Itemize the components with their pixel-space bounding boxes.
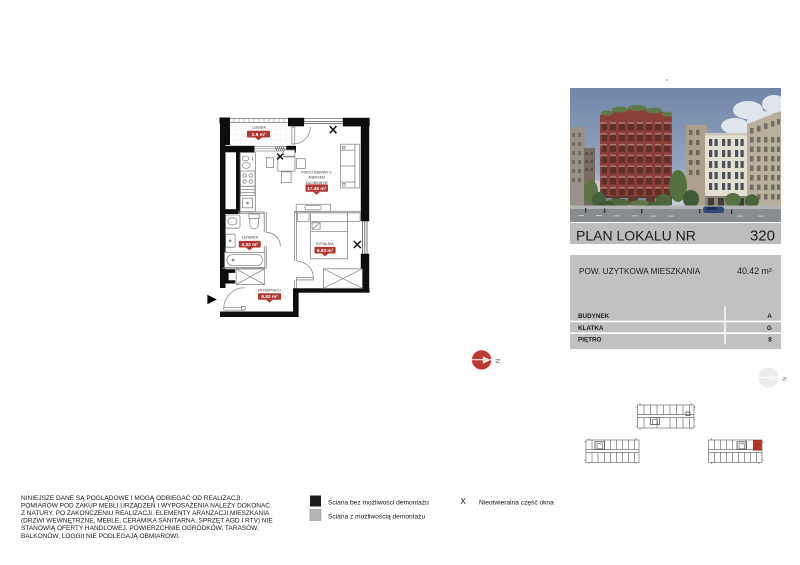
svg-text:SYPIALNIA: SYPIALNIA xyxy=(316,242,334,246)
svg-text:PLAN LOKALU NR: PLAN LOKALU NR xyxy=(576,228,696,244)
svg-text:8: 8 xyxy=(768,337,772,344)
svg-text:Nieotwieralna część okna: Nieotwieralna część okna xyxy=(479,499,554,506)
svg-text:POKÓJ DZIENNY Z: POKÓJ DZIENNY Z xyxy=(301,170,331,175)
svg-text:A: A xyxy=(767,313,772,320)
svg-text:POW. UŻYTKOWA MIESZKANIA: POW. UŻYTKOWA MIESZKANIA xyxy=(579,266,701,276)
svg-text:LOGGIA: LOGGIA xyxy=(252,126,266,130)
svg-text:Ściana z możliwością demontażu: Ściana z możliwością demontażu xyxy=(328,511,425,520)
svg-text:Ściana bez możliwości demontaż: Ściana bez możliwości demontażu xyxy=(328,497,429,506)
svg-text:4.32 m²: 4.32 m² xyxy=(241,242,258,248)
svg-text:PRZEDPOKÓJ: PRZEDPOKÓJ xyxy=(258,288,281,293)
svg-text:POMIARÓW POD ZAKUP MEBLI URZĄD: POMIARÓW POD ZAKUP MEBLI URZĄDZEŃ I WYPO… xyxy=(21,500,270,509)
svg-text:ŁAZIENKA: ŁAZIENKA xyxy=(242,236,259,240)
svg-text:N: N xyxy=(493,359,499,363)
svg-text:9.83 m²: 9.83 m² xyxy=(317,248,334,254)
svg-text:Z NATURY, PO ZAKOŃCZENIU REALI: Z NATURY, PO ZAKOŃCZENIU REALIZACJI. ELE… xyxy=(21,508,270,517)
svg-text:NINIEJSZE DANE SĄ POGLĄDOWE I: NINIEJSZE DANE SĄ POGLĄDOWE I MOGĄ ODBIE… xyxy=(21,493,243,502)
svg-text:KUCHENNYM: KUCHENNYM xyxy=(306,181,328,185)
svg-text:(DRZWI WEWNĘTRZNE, MEBLE, CERA: (DRZWI WEWNĘTRZNE, MEBLE, CERAMIKA SANIT… xyxy=(21,518,273,525)
svg-text:17.45 m²: 17.45 m² xyxy=(307,186,327,192)
svg-text:G: G xyxy=(767,325,772,332)
svg-text:PIĘTRO: PIĘTRO xyxy=(578,337,602,344)
svg-text:2.9 m²: 2.9 m² xyxy=(252,132,266,138)
svg-text:X: X xyxy=(461,497,467,506)
svg-text:320: 320 xyxy=(750,228,775,245)
svg-text:40.42 m²: 40.42 m² xyxy=(737,266,772,276)
svg-text:STANOWIĄ OFERTY HANDLOWEJ. POW: STANOWIĄ OFERTY HANDLOWEJ. POWIERZCHNIE … xyxy=(21,523,259,532)
svg-text:BALKONÓW, LOGGII NIE PODLEGAJĄ: BALKONÓW, LOGGII NIE PODLEGAJĄ OBMIAROWI… xyxy=(21,531,180,540)
svg-text:KLATKA: KLATKA xyxy=(578,325,604,332)
svg-text:BUDYNEK: BUDYNEK xyxy=(578,313,610,320)
svg-text:ANEKSEM: ANEKSEM xyxy=(308,176,325,180)
svg-text:6.82 m²: 6.82 m² xyxy=(261,294,278,300)
svg-text:N: N xyxy=(780,377,786,381)
